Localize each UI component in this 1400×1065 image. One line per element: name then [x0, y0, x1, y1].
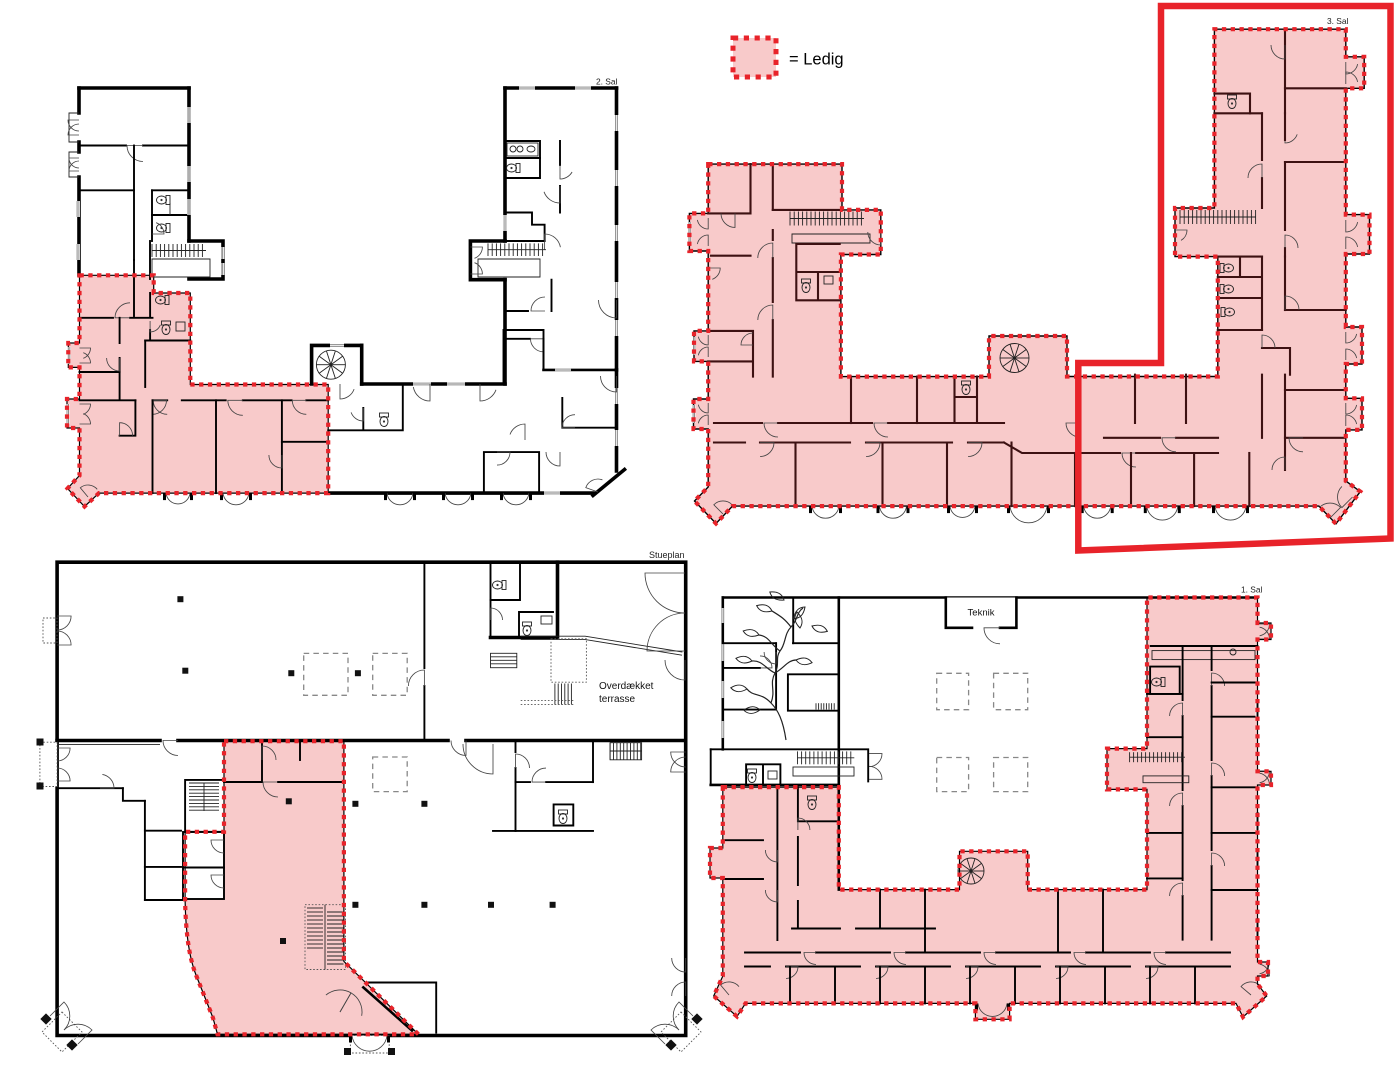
- svg-text:= Ledig: = Ledig: [789, 51, 844, 69]
- svg-text:3. Sal: 3. Sal: [1327, 16, 1349, 26]
- svg-text:2. Sal: 2. Sal: [596, 77, 618, 87]
- svg-text:Stueplan: Stueplan: [649, 550, 685, 560]
- svg-text:1. Sal: 1. Sal: [1241, 585, 1263, 595]
- svg-text:terrasse: terrasse: [599, 694, 636, 705]
- svg-text:Overdækket: Overdækket: [599, 681, 654, 692]
- svg-text:Teknik: Teknik: [968, 608, 995, 619]
